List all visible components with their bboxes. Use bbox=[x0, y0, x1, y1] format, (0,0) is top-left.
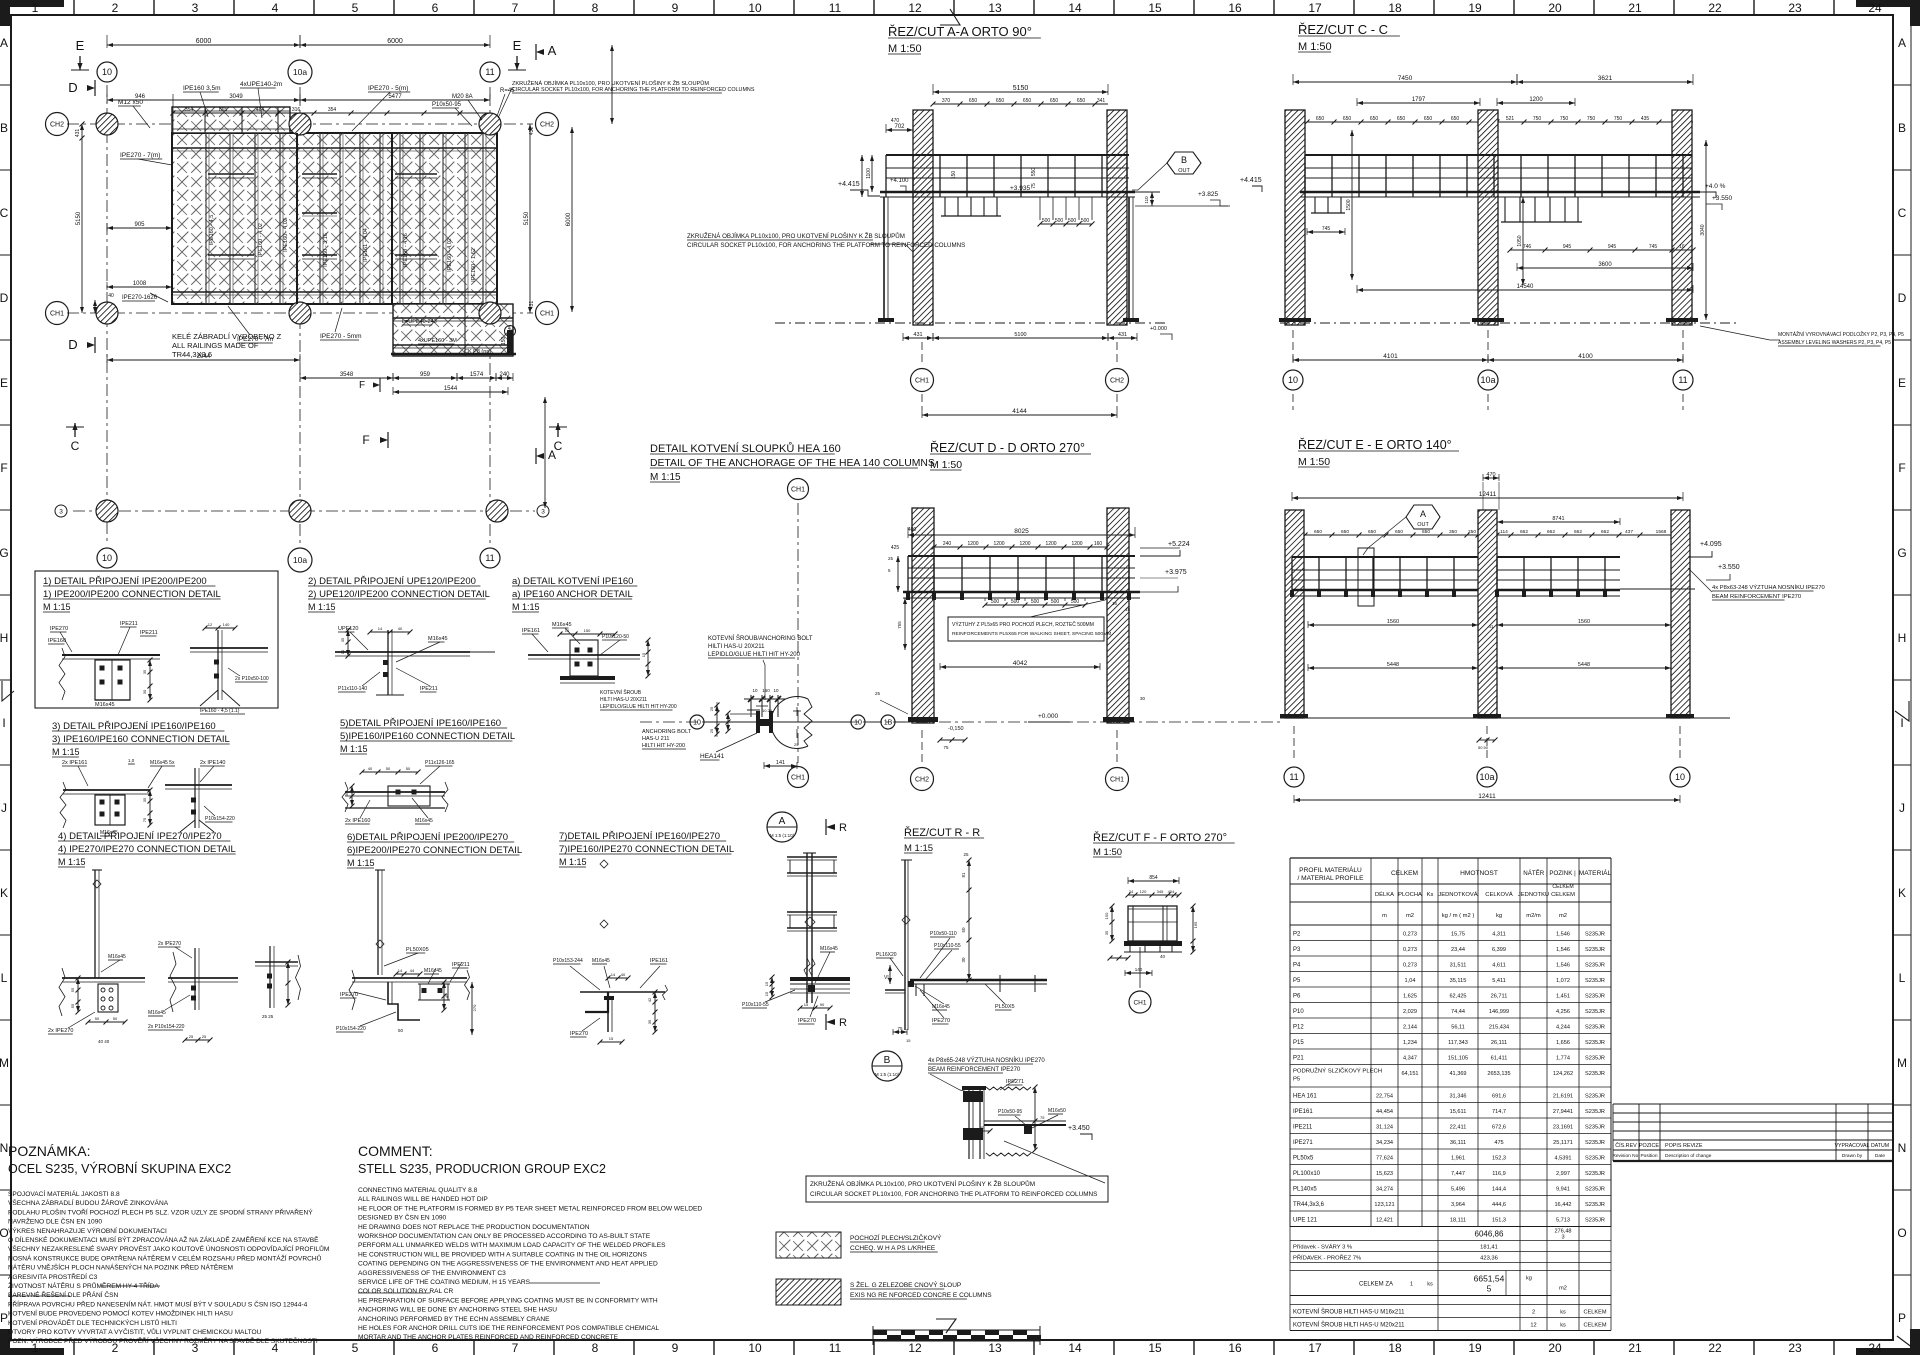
svg-text:10: 10 bbox=[102, 67, 112, 77]
svg-text:ALL RAILINGS MADE OF: ALL RAILINGS MADE OF bbox=[172, 341, 259, 350]
svg-text:2x P10x50-100: 2x P10x50-100 bbox=[235, 676, 269, 682]
svg-text:ks: ks bbox=[1427, 1282, 1433, 1288]
svg-text:50: 50 bbox=[113, 1016, 118, 1021]
svg-text:kg / m ( m2 ): kg / m ( m2 ) bbox=[1442, 913, 1475, 919]
svg-text:IPE160 - 4,5 (1.1): IPE160 - 4,5 (1.1) bbox=[200, 708, 240, 714]
svg-text:M 1:15: M 1:15 bbox=[52, 747, 80, 757]
svg-text:P15: P15 bbox=[1293, 1040, 1304, 1046]
svg-text:CH2: CH2 bbox=[50, 122, 64, 129]
svg-text:P6: P6 bbox=[1293, 994, 1301, 1000]
svg-text:151,3: 151,3 bbox=[1492, 1218, 1506, 1224]
svg-text:ŘEZ/CUT D - D ORTO 270°: ŘEZ/CUT D - D ORTO 270° bbox=[930, 440, 1085, 455]
svg-text:2x IPE161: 2x IPE161 bbox=[62, 760, 87, 766]
svg-text:7450: 7450 bbox=[1398, 75, 1413, 82]
svg-text:650: 650 bbox=[1316, 116, 1325, 122]
svg-text:5100: 5100 bbox=[1014, 332, 1026, 338]
svg-text:M 1:5 (1:10): M 1:5 (1:10) bbox=[770, 833, 795, 838]
svg-text:P12: P12 bbox=[1293, 1025, 1304, 1031]
svg-text:81: 81 bbox=[961, 872, 966, 878]
svg-text:11: 11 bbox=[829, 1341, 842, 1355]
svg-text:M 1:50: M 1:50 bbox=[1093, 847, 1122, 858]
svg-text:650: 650 bbox=[1451, 116, 1460, 122]
svg-text:1,546: 1,546 bbox=[1556, 947, 1570, 953]
svg-text:10: 10 bbox=[1288, 375, 1298, 385]
svg-text:1500: 1500 bbox=[1346, 199, 1352, 210]
svg-text:1: 1 bbox=[32, 1, 39, 15]
svg-text:CELKEM: CELKEM bbox=[1583, 1323, 1606, 1329]
svg-text:UPE 121: UPE 121 bbox=[1293, 1218, 1318, 1224]
svg-text:ŘEZ/CUT F - F ORTO 270°: ŘEZ/CUT F - F ORTO 270° bbox=[1093, 831, 1227, 844]
svg-text:40: 40 bbox=[1160, 954, 1166, 959]
svg-text:0,273: 0,273 bbox=[1403, 963, 1417, 969]
svg-text:650: 650 bbox=[1424, 116, 1433, 122]
svg-text:6)IPE200/IPE270 CONNECTION DET: 6)IPE200/IPE270 CONNECTION DETAIL bbox=[347, 845, 522, 856]
svg-text:P11x126-165: P11x126-165 bbox=[425, 760, 455, 766]
svg-text:12411: 12411 bbox=[1478, 793, 1496, 800]
svg-text:3: 3 bbox=[192, 1, 199, 15]
svg-text:5150: 5150 bbox=[524, 211, 530, 225]
svg-text:J: J bbox=[1899, 801, 1905, 815]
svg-text:7: 7 bbox=[512, 1, 519, 15]
svg-text:116,9: 116,9 bbox=[1492, 1171, 1506, 1177]
svg-text:23,1691: 23,1691 bbox=[1553, 1125, 1573, 1131]
svg-text:6000: 6000 bbox=[196, 38, 212, 45]
svg-text:55: 55 bbox=[70, 987, 75, 992]
svg-text:36,111: 36,111 bbox=[1450, 1140, 1466, 1146]
svg-text:35,115: 35,115 bbox=[1450, 978, 1467, 984]
svg-text:IPE161: IPE161 bbox=[1293, 1109, 1313, 1115]
svg-text:2,997: 2,997 bbox=[1556, 1171, 1570, 1177]
svg-text:20: 20 bbox=[1548, 1, 1562, 15]
svg-text:HE CONSTRUCTION WILL BE PROVID: HE CONSTRUCTION WILL BE PROVIDED WITH A … bbox=[358, 1251, 648, 1258]
svg-text:114: 114 bbox=[1500, 529, 1508, 535]
svg-text:2: 2 bbox=[112, 1, 119, 15]
svg-text:JEDNOTKU: JEDNOTKU bbox=[1518, 892, 1549, 898]
svg-text:S235JR: S235JR bbox=[1585, 1171, 1605, 1177]
svg-text:HE DRAWING DOES NOT REPLACE TH: HE DRAWING DOES NOT REPLACE THE PRODUCTI… bbox=[358, 1224, 590, 1231]
svg-text:L: L bbox=[1, 971, 8, 985]
svg-text:POCHOZÍ PLECH/SLZIČKOVÝ: POCHOZÍ PLECH/SLZIČKOVÝ bbox=[850, 1233, 942, 1242]
svg-text:6000: 6000 bbox=[566, 212, 572, 226]
svg-text:D: D bbox=[68, 80, 77, 95]
svg-text:13: 13 bbox=[988, 1, 1002, 15]
svg-text:500: 500 bbox=[991, 599, 1000, 605]
svg-text:IPE160 3,5m: IPE160 3,5m bbox=[183, 85, 221, 92]
svg-text:IPE211: IPE211 bbox=[120, 621, 138, 627]
svg-text:E: E bbox=[513, 38, 522, 53]
svg-text:NAVRŽENO DLE ČSN EN 1090: NAVRŽENO DLE ČSN EN 1090 bbox=[8, 1217, 102, 1226]
svg-text:M16x45: M16x45 bbox=[552, 622, 572, 628]
svg-text:VYPRACOVAL: VYPRACOVAL bbox=[1835, 1143, 1870, 1149]
svg-text:5,496: 5,496 bbox=[1451, 1187, 1465, 1193]
svg-text:P10: P10 bbox=[1293, 1009, 1304, 1015]
svg-text:27,9441: 27,9441 bbox=[1553, 1109, 1573, 1115]
svg-text:1,451: 1,451 bbox=[1556, 994, 1570, 1000]
svg-text:3) IPE160/IPE160 CONNECTION DE: 3) IPE160/IPE160 CONNECTION DETAIL bbox=[52, 734, 230, 745]
svg-text:I: I bbox=[1900, 716, 1903, 730]
svg-text:50: 50 bbox=[961, 927, 966, 933]
svg-text:3548: 3548 bbox=[340, 372, 354, 378]
svg-text:316: 316 bbox=[292, 107, 301, 113]
svg-text:854: 854 bbox=[1149, 875, 1158, 881]
svg-text:31,511: 31,511 bbox=[1450, 963, 1467, 969]
svg-text:P11x110-140: P11x110-140 bbox=[338, 686, 367, 692]
svg-text:CELKEM: CELKEM bbox=[1551, 892, 1575, 898]
svg-text:F: F bbox=[359, 380, 365, 391]
svg-text:PL50x5: PL50x5 bbox=[1293, 1156, 1314, 1162]
svg-text:5448: 5448 bbox=[1578, 662, 1590, 668]
svg-text:E: E bbox=[0, 376, 8, 390]
svg-text:BAREVNÉ ŘEŠENÍ DLE: BAREVNÉ ŘEŠENÍ DLE PŘÁNÍ ČSN bbox=[8, 1290, 119, 1299]
svg-text:S235JR: S235JR bbox=[1585, 1218, 1605, 1224]
svg-text:IPE271: IPE271 bbox=[1293, 1140, 1313, 1146]
svg-text:M 1:15: M 1:15 bbox=[58, 857, 86, 867]
svg-text:O: O bbox=[1897, 1226, 1906, 1240]
svg-text:S235JR: S235JR bbox=[1585, 1040, 1605, 1046]
svg-text:5)IPE160/IPE160 CONNECTION DET: 5)IPE160/IPE160 CONNECTION DETAIL bbox=[340, 731, 515, 742]
svg-text:C: C bbox=[0, 206, 9, 220]
svg-text:1B: 1B bbox=[884, 720, 893, 727]
svg-text:160: 160 bbox=[762, 688, 770, 693]
svg-text:G: G bbox=[1897, 546, 1906, 560]
svg-text:10: 10 bbox=[748, 1, 762, 15]
svg-text:IPE270 - 5(m): IPE270 - 5(m) bbox=[368, 85, 408, 92]
svg-text:M 1:50: M 1:50 bbox=[1298, 456, 1330, 468]
svg-text:JEDNOTKOVÁ: JEDNOTKOVÁ bbox=[1438, 891, 1477, 898]
svg-text:PŘÍPRAVA POVRCHU PŘED NANESENÍ: PŘÍPRAVA POVRCHU PŘED NANESENÍM NÁT. HMO… bbox=[8, 1299, 308, 1308]
svg-text:S235JR: S235JR bbox=[1585, 1094, 1605, 1100]
svg-text:CELKOVÁ: CELKOVÁ bbox=[1485, 891, 1513, 898]
svg-text:1,656: 1,656 bbox=[1556, 1040, 1570, 1046]
svg-text:17: 17 bbox=[1308, 1341, 1322, 1355]
svg-text:250: 250 bbox=[1468, 529, 1476, 535]
svg-text:M 1:15: M 1:15 bbox=[340, 744, 368, 754]
svg-text:B: B bbox=[1898, 121, 1906, 135]
svg-text:215,434: 215,434 bbox=[1489, 1025, 1509, 1031]
svg-text:ZKRUŽENÁ OBJÍMKA PL10x100, PRO: ZKRUŽENÁ OBJÍMKA PL10x100, PRO UKOTVENÍ … bbox=[810, 1179, 1035, 1188]
svg-text:150: 150 bbox=[501, 336, 507, 345]
svg-text:HE PREPARATION OF SURFACE BEFO: HE PREPARATION OF SURFACE BEFORE APPLYIN… bbox=[358, 1297, 658, 1304]
svg-text:S ŽEL. G ZELEZOBE CNOVÝ SLOUP: S ŽEL. G ZELEZOBE CNOVÝ SLOUP bbox=[850, 1280, 961, 1289]
svg-text:270: 270 bbox=[472, 1004, 477, 1011]
svg-text:6651,54: 6651,54 bbox=[1474, 1274, 1505, 1284]
svg-text:14: 14 bbox=[611, 972, 616, 977]
svg-text:1,774: 1,774 bbox=[1556, 1056, 1570, 1062]
svg-text:5150: 5150 bbox=[1013, 85, 1029, 92]
svg-text:3600: 3600 bbox=[1598, 262, 1612, 268]
svg-text:7)DETAIL PŘIPOJENÍ IPE160/IPE2: 7)DETAIL PŘIPOJENÍ IPE160/IPE270 bbox=[559, 831, 720, 842]
svg-text:ZKRUŽENÁ OBJÍMKA PL10x100, PRO: ZKRUŽENÁ OBJÍMKA PL10x100, PRO UKOTVENÍ … bbox=[512, 79, 709, 87]
svg-text:14: 14 bbox=[378, 626, 383, 631]
svg-text:M12 x50: M12 x50 bbox=[118, 99, 143, 106]
svg-text:4xUPE160 - 3M: 4xUPE160 - 3M bbox=[418, 338, 457, 344]
svg-text:m2: m2 bbox=[1559, 913, 1567, 919]
svg-text:500: 500 bbox=[1071, 599, 1080, 605]
svg-text:IPE160: IPE160 bbox=[48, 638, 66, 644]
svg-text:TR44,3x3,6: TR44,3x3,6 bbox=[1293, 1202, 1325, 1208]
svg-text:CH1: CH1 bbox=[791, 775, 805, 782]
svg-text:1,04: 1,04 bbox=[1405, 978, 1416, 984]
svg-text:714,7: 714,7 bbox=[1492, 1109, 1506, 1115]
svg-text:VŠECHNY NEZAKRESLENÉ SVARY PRO: VŠECHNY NEZAKRESLENÉ SVARY PROVÉST JAKO … bbox=[8, 1244, 329, 1253]
svg-text:40: 40 bbox=[621, 972, 626, 977]
svg-text:F: F bbox=[362, 433, 369, 447]
svg-text:140: 140 bbox=[1135, 967, 1143, 972]
svg-text:KELÉ ZÁBRADLÍ VYROBENO Z: KELÉ ZÁBRADLÍ VYROBENO Z bbox=[172, 332, 282, 341]
svg-text:2653,135: 2653,135 bbox=[1487, 1071, 1510, 1077]
svg-text:PROFIL MATERIÁLU: PROFIL MATERIÁLU bbox=[1299, 865, 1362, 874]
svg-text:6)DETAIL PŘIPOJENÍ IPE200/IPE2: 6)DETAIL PŘIPOJENÍ IPE200/IPE270 bbox=[347, 832, 508, 843]
svg-text:P5: P5 bbox=[1293, 1077, 1301, 1083]
svg-text:431: 431 bbox=[75, 129, 81, 138]
svg-text:IPE161: IPE161 bbox=[650, 958, 668, 964]
svg-text:ANCHORING WILL BE DONE BY ANCH: ANCHORING WILL BE DONE BY ANCHORING STEE… bbox=[358, 1307, 557, 1314]
svg-text:444,6: 444,6 bbox=[1492, 1202, 1506, 1208]
svg-text:M 1:50: M 1:50 bbox=[888, 43, 922, 55]
svg-text:12,421: 12,421 bbox=[1376, 1218, 1393, 1224]
svg-text:D: D bbox=[68, 337, 77, 352]
svg-text:G: G bbox=[0, 546, 9, 560]
svg-text:15,611: 15,611 bbox=[1450, 1109, 1467, 1115]
svg-text:H: H bbox=[0, 631, 8, 645]
svg-text:45: 45 bbox=[1125, 607, 1131, 612]
svg-text:Drawn by: Drawn by bbox=[1842, 1153, 1863, 1159]
svg-text:M 1:5 (1:10): M 1:5 (1:10) bbox=[875, 1072, 900, 1077]
svg-text:+5.224: +5.224 bbox=[1168, 541, 1190, 548]
svg-text:25: 25 bbox=[794, 742, 799, 747]
svg-text:120: 120 bbox=[1140, 889, 1147, 894]
svg-text:LEPIDLO/GLUE HILTI HIT HY-200: LEPIDLO/GLUE HILTI HIT HY-200 bbox=[600, 704, 677, 710]
svg-text:COLOR SOLUTION: COLOR SOLUTION BY RAL CR bbox=[358, 1288, 454, 1295]
svg-text:3) DETAIL PŘIPOJENÍ IPE160/IPE: 3) DETAIL PŘIPOJENÍ IPE160/IPE160 bbox=[52, 721, 216, 732]
svg-text:+0.000: +0.000 bbox=[1150, 326, 1167, 332]
svg-text:IPE160 - 3,16: IPE160 - 3,16 bbox=[323, 233, 329, 267]
svg-text:21: 21 bbox=[1628, 1341, 1642, 1355]
svg-text:D: D bbox=[1898, 291, 1907, 305]
svg-text:23,44: 23,44 bbox=[1451, 947, 1465, 953]
svg-text:CH1: CH1 bbox=[50, 311, 64, 318]
svg-text:437: 437 bbox=[1625, 529, 1633, 535]
svg-text:10: 10 bbox=[748, 1341, 762, 1355]
svg-text:CCHEQ. W H A PS L/KRHEE: CCHEQ. W H A PS L/KRHEE bbox=[850, 1245, 936, 1252]
svg-text:5150: 5150 bbox=[76, 211, 82, 225]
svg-text:VÝZTUHY Z PL5x65 PRO POCHOZÍ P: VÝZTUHY Z PL5x65 PRO POCHOZÍ PLECH, ROZT… bbox=[952, 621, 1094, 628]
svg-text:IPE160 - 4,5: IPE160 - 4,5 bbox=[209, 215, 215, 246]
svg-text:34,234: 34,234 bbox=[1376, 1140, 1393, 1146]
svg-text:IPE270: IPE270 bbox=[932, 1018, 950, 1024]
svg-text:691,6: 691,6 bbox=[1492, 1094, 1506, 1100]
svg-text:H: H bbox=[1898, 631, 1907, 645]
svg-text:Description of change: Description of change bbox=[1665, 1153, 1712, 1159]
svg-text:S235JR: S235JR bbox=[1585, 1025, 1605, 1031]
svg-text:6046,86: 6046,86 bbox=[1475, 1230, 1504, 1239]
svg-text:1200: 1200 bbox=[993, 541, 1004, 547]
svg-text:IPE270: IPE270 bbox=[798, 1018, 816, 1024]
svg-text:1200: 1200 bbox=[1045, 541, 1056, 547]
svg-text:10a: 10a bbox=[1479, 772, 1494, 782]
svg-text:2: 2 bbox=[1532, 1310, 1535, 1316]
svg-text:P2: P2 bbox=[1293, 932, 1301, 938]
svg-text:ANCHORING PERFORMED BY THE ECH: ANCHORING PERFORMED BY THE ECHN ASSEMBLY… bbox=[358, 1316, 550, 1323]
svg-text:CELKEM: CELKEM bbox=[1391, 870, 1418, 877]
svg-text:24: 24 bbox=[1868, 1341, 1882, 1355]
svg-text:CH1: CH1 bbox=[1110, 777, 1124, 784]
svg-text:+3.550: +3.550 bbox=[1718, 564, 1740, 571]
svg-text:M16x45: M16x45 bbox=[415, 818, 433, 824]
svg-text:1,961: 1,961 bbox=[1451, 1156, 1465, 1162]
svg-text:64,151: 64,151 bbox=[1401, 1071, 1418, 1077]
svg-text:PL140x5: PL140x5 bbox=[1293, 1187, 1317, 1193]
svg-text:11: 11 bbox=[1289, 772, 1298, 782]
svg-text:5448: 5448 bbox=[1387, 662, 1399, 668]
svg-text:140: 140 bbox=[223, 622, 230, 627]
svg-text:S235JR: S235JR bbox=[1585, 1056, 1605, 1062]
svg-text:4: 4 bbox=[272, 1, 279, 15]
svg-text:55: 55 bbox=[70, 1003, 75, 1008]
svg-text:ks: ks bbox=[1560, 1323, 1566, 1329]
svg-text:D: D bbox=[0, 291, 9, 305]
svg-text:25: 25 bbox=[963, 852, 969, 857]
svg-text:CH1: CH1 bbox=[791, 487, 805, 494]
svg-text:1,546: 1,546 bbox=[1556, 963, 1570, 969]
svg-text:1200: 1200 bbox=[1071, 541, 1082, 547]
svg-text:IPE211: IPE211 bbox=[420, 686, 438, 692]
svg-text:672,6: 672,6 bbox=[1492, 1125, 1506, 1131]
svg-text:4,347: 4,347 bbox=[1403, 1056, 1417, 1062]
svg-text:DETAIL OF THE ANCHORAGE OF THE: DETAIL OF THE ANCHORAGE OF THE HEA 140 C… bbox=[650, 458, 935, 469]
svg-text:P10x154-220: P10x154-220 bbox=[205, 816, 235, 822]
svg-text:IPE211: IPE211 bbox=[1293, 1125, 1313, 1131]
svg-text:POZICE: POZICE bbox=[1639, 1143, 1659, 1149]
svg-text:423,36: 423,36 bbox=[1480, 1256, 1498, 1262]
svg-text:+3.935: +3.935 bbox=[1010, 185, 1030, 192]
svg-text:M16x45: M16x45 bbox=[428, 636, 448, 642]
svg-text:IPE160 - 4,02: IPE160 - 4,02 bbox=[447, 238, 453, 272]
svg-text:15: 15 bbox=[906, 1038, 911, 1043]
svg-text:SPOJOVACÍ MATERIÁL JAKOSTI 8.8: SPOJOVACÍ MATERIÁL JAKOSTI 8.8 bbox=[8, 1189, 120, 1198]
svg-text:B: B bbox=[0, 121, 8, 135]
svg-text:10: 10 bbox=[1675, 772, 1685, 782]
svg-text:650: 650 bbox=[1422, 529, 1430, 535]
svg-text:750: 750 bbox=[1560, 116, 1569, 122]
svg-text:COMMENT:: COMMENT: bbox=[358, 1143, 433, 1159]
svg-text:VŠECHNA ZÁBRADLÍ BUDOU ŽÁROVĚ: VŠECHNA ZÁBRADLÍ BUDOU ŽÁROVĚ ZINKOVÁNA bbox=[8, 1198, 169, 1207]
svg-text:41,369: 41,369 bbox=[1449, 1071, 1466, 1077]
svg-text:1544: 1544 bbox=[444, 386, 458, 392]
svg-text:ŘEZ/CUT A-A ORTO 90°: ŘEZ/CUT A-A ORTO 90° bbox=[888, 24, 1032, 39]
svg-text:56,11: 56,11 bbox=[1451, 1025, 1465, 1031]
svg-text:B: B bbox=[884, 1055, 891, 1066]
svg-text:E: E bbox=[76, 38, 85, 53]
svg-text:35: 35 bbox=[340, 637, 345, 642]
svg-text:PL100x10: PL100x10 bbox=[1293, 1171, 1321, 1177]
svg-text:1,0: 1,0 bbox=[128, 758, 135, 763]
svg-text:3: 3 bbox=[1561, 1235, 1564, 1241]
svg-text:IPE270: IPE270 bbox=[340, 992, 358, 998]
svg-text:6: 6 bbox=[432, 1, 439, 15]
svg-text:123,121: 123,121 bbox=[1374, 1202, 1394, 1208]
svg-text:18: 18 bbox=[1388, 1341, 1402, 1355]
svg-text:2) UPE120/IPE200 CONNECTION DE: 2) UPE120/IPE200 CONNECTION DETAIL bbox=[308, 589, 490, 600]
svg-text:2x IPE140: 2x IPE140 bbox=[200, 760, 225, 766]
svg-text:21: 21 bbox=[1628, 1, 1642, 15]
svg-text:P3: P3 bbox=[1293, 947, 1301, 953]
svg-text:151,105: 151,105 bbox=[1448, 1056, 1468, 1062]
svg-text:865: 865 bbox=[219, 107, 228, 113]
svg-text:15: 15 bbox=[764, 991, 769, 996]
svg-text:7,447: 7,447 bbox=[1451, 1171, 1465, 1177]
svg-text:ASSEMBLY LEVELING WASHERS P2,: ASSEMBLY LEVELING WASHERS P2, P3, P4, P5 bbox=[1778, 340, 1891, 346]
svg-text:16,442: 16,442 bbox=[1554, 1202, 1571, 1208]
svg-text:25 25: 25 25 bbox=[262, 1014, 274, 1019]
svg-text:1574: 1574 bbox=[470, 372, 484, 378]
svg-text:m: m bbox=[1382, 913, 1387, 919]
svg-text:CONNECTING MATERIAL QUALITY 8.: CONNECTING MATERIAL QUALITY 8.8 bbox=[358, 1187, 478, 1194]
svg-text:12: 12 bbox=[908, 1, 922, 15]
svg-text:20: 20 bbox=[1548, 1341, 1562, 1355]
svg-text:AGGRESSIVENESS OF THE ENVIRONM: AGGRESSIVENESS OF THE ENVIRONMENT C3 bbox=[358, 1270, 506, 1277]
svg-text:650: 650 bbox=[1397, 116, 1406, 122]
svg-text:240: 240 bbox=[499, 372, 510, 378]
svg-text:8025: 8025 bbox=[1014, 528, 1029, 535]
svg-text:P10x110-55: P10x110-55 bbox=[742, 1002, 769, 1008]
svg-text:4xUPE140-2m: 4xUPE140-2m bbox=[240, 81, 282, 88]
svg-text:m2: m2 bbox=[1559, 1286, 1567, 1292]
svg-text:1100: 1100 bbox=[866, 168, 872, 179]
svg-text:15: 15 bbox=[764, 981, 769, 986]
svg-text:A: A bbox=[1420, 509, 1426, 519]
svg-text:12: 12 bbox=[1530, 1323, 1536, 1329]
svg-text:750: 750 bbox=[1533, 116, 1542, 122]
svg-text:CH2: CH2 bbox=[915, 777, 929, 784]
svg-text:74,44: 74,44 bbox=[1451, 1009, 1465, 1015]
svg-text:IPE270: IPE270 bbox=[50, 626, 68, 632]
svg-text:4,611: 4,611 bbox=[1492, 963, 1506, 969]
svg-text:1) DETAIL PŘIPOJENÍ IPE200/IPE: 1) DETAIL PŘIPOJENÍ IPE200/IPE200 bbox=[43, 576, 207, 587]
svg-text:M 1:15: M 1:15 bbox=[559, 857, 587, 867]
svg-text:a) DETAIL KOTVENÍ IPE160: a) DETAIL KOTVENÍ IPE160 bbox=[512, 576, 633, 587]
svg-text:P10x110-55: P10x110-55 bbox=[934, 943, 961, 949]
svg-text:61,411: 61,411 bbox=[1491, 1056, 1508, 1062]
svg-text:14: 14 bbox=[1068, 1, 1082, 15]
svg-text:KOTVENÍ PROVÁDĚT DLE TECHNICKÝ: KOTVENÍ PROVÁDĚT DLE TECHNICKÝCH LISTŮ H… bbox=[8, 1318, 177, 1327]
svg-text:IPE160 - 4,16: IPE160 - 4,16 bbox=[403, 233, 409, 267]
svg-text:IPE211: IPE211 bbox=[140, 630, 158, 636]
svg-text:NÁTĚRU VNĚJŠÍCH PLOCH NANÁŠENÝ: NÁTĚRU VNĚJŠÍCH PLOCH NANÁŠENÝCH NA POZI… bbox=[8, 1263, 233, 1272]
svg-text:P10x154-220: P10x154-220 bbox=[336, 1026, 366, 1032]
svg-text:15: 15 bbox=[641, 652, 646, 657]
svg-text:10 25: 10 25 bbox=[762, 708, 773, 713]
svg-text:16: 16 bbox=[1228, 1, 1242, 15]
svg-text:M16x45: M16x45 bbox=[424, 968, 442, 974]
svg-text:650: 650 bbox=[1077, 98, 1086, 104]
svg-text:S235JR: S235JR bbox=[1585, 1140, 1605, 1146]
svg-text:75: 75 bbox=[897, 1026, 903, 1031]
svg-text:435: 435 bbox=[1641, 116, 1650, 122]
svg-text:4,5: 4,5 bbox=[508, 326, 515, 332]
svg-text:IPE160 - 1,62: IPE160 - 1,62 bbox=[471, 248, 477, 282]
svg-text:PL50X05: PL50X05 bbox=[406, 947, 429, 953]
svg-text:PODLAHU PLOŠIN TVOŘÍ POCHOZÍ P: PODLAHU PLOŠIN TVOŘÍ POCHOZÍ PLECH P5 SL… bbox=[8, 1207, 313, 1216]
svg-text:650: 650 bbox=[1023, 98, 1032, 104]
svg-text:470: 470 bbox=[1486, 472, 1495, 478]
svg-text:OUT: OUT bbox=[1178, 168, 1190, 174]
svg-text:75: 75 bbox=[142, 817, 147, 822]
svg-text:25: 25 bbox=[189, 1034, 194, 1039]
svg-text:470: 470 bbox=[891, 118, 900, 124]
svg-text:M 1:15: M 1:15 bbox=[650, 472, 681, 483]
svg-text:19: 19 bbox=[1468, 1341, 1482, 1355]
